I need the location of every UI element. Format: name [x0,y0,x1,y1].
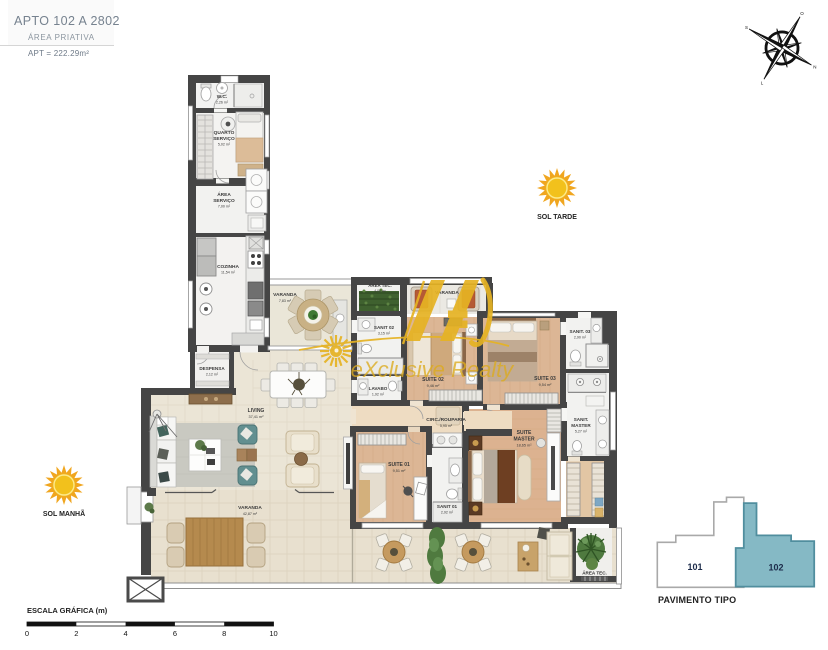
svg-text:SANIT 01: SANIT 01 [437,504,458,509]
svg-text:VARANDA: VARANDA [238,505,262,511]
svg-text:LIVING: LIVING [248,408,265,414]
svg-text:MASTER: MASTER [571,423,591,428]
svg-text:4,00 m²: 4,00 m² [374,289,386,293]
svg-text:ÁREA: ÁREA [217,191,231,198]
svg-text:6: 6 [173,629,177,638]
svg-text:SANIT. 03: SANIT. 03 [570,329,591,334]
svg-text:N: N [813,65,816,70]
svg-text:2,92 m²: 2,92 m² [441,511,454,515]
svg-text:4: 4 [124,629,128,638]
svg-text:5,95 m²: 5,95 m² [440,424,453,428]
svg-text:18,65 m²: 18,65 m² [517,444,533,448]
svg-text:CIRC./ROUPARIA: CIRC./ROUPARIA [426,417,466,423]
svg-text:O: O [800,11,804,16]
svg-text:102: 102 [768,563,783,573]
svg-text:LAVABO: LAVABO [369,386,388,391]
svg-text:QUARTO: QUARTO [214,130,235,136]
svg-text:PAVIMENTO TIPO: PAVIMENTO TIPO [658,595,736,605]
svg-text:SOL MANHÃ: SOL MANHÃ [43,509,85,518]
svg-text:SERVIÇO: SERVIÇO [213,198,235,204]
svg-text:DESPENSA: DESPENSA [199,366,225,371]
svg-text:10: 10 [269,629,277,638]
svg-text:37,41 m²: 37,41 m² [249,415,265,419]
svg-text:ÁREA TEC.: ÁREA TEC. [582,570,607,576]
svg-text:2: 2 [74,629,78,638]
svg-text:S: S [745,25,748,30]
svg-text:7,00 m²: 7,00 m² [218,205,231,209]
svg-text:W.C.: W.C. [217,94,227,100]
svg-text:11,54 m²: 11,54 m² [221,271,236,275]
svg-text:1,92 m²: 1,92 m² [372,393,385,397]
svg-text:VARANDA: VARANDA [273,292,297,298]
svg-text:SANIT 02: SANIT 02 [374,325,395,330]
svg-text:COZINHA: COZINHA [217,264,239,270]
svg-text:SERVIÇO: SERVIÇO [213,136,235,142]
svg-text:9,51 m²: 9,51 m² [393,469,407,473]
svg-text:APT = 222.29m²: APT = 222.29m² [28,49,89,58]
svg-text:3,15 m²: 3,15 m² [378,332,391,336]
svg-text:9,46 m²: 9,46 m² [427,384,441,388]
svg-text:2,90 m²: 2,90 m² [574,336,587,340]
svg-text:5,02 m²: 5,02 m² [218,143,231,147]
svg-text:ESCALA GRÁFICA (m): ESCALA GRÁFICA (m) [27,606,108,615]
svg-text:9,54 m²: 9,54 m² [539,383,553,387]
svg-text:8: 8 [222,629,226,638]
svg-text:2,26 m²: 2,26 m² [216,101,229,105]
svg-text:7,83 m²: 7,83 m² [279,299,292,303]
svg-text:2,12 m²: 2,12 m² [206,373,219,377]
svg-text:ÁREA TEC.: ÁREA TEC. [368,283,392,288]
svg-text:42,87 m²: 42,87 m² [243,512,258,516]
svg-text:ÁREA PRIATIVA: ÁREA PRIATIVA [28,33,95,42]
svg-text:SANIT.: SANIT. [574,417,589,422]
svg-text:101: 101 [687,562,702,572]
svg-text:SUITE: SUITE [517,430,532,436]
svg-text:SUITE 01: SUITE 01 [388,462,410,468]
svg-text:MASTER: MASTER [513,437,535,443]
svg-text:SOL TARDE: SOL TARDE [537,214,577,221]
svg-text:SUITE 03: SUITE 03 [534,376,556,382]
svg-text:eXclusive Realty: eXclusive Realty [351,357,516,382]
svg-text:0: 0 [25,629,29,638]
svg-text:5,27 m²: 5,27 m² [575,430,588,434]
svg-text:APTO 102 A 2802: APTO 102 A 2802 [14,14,120,28]
